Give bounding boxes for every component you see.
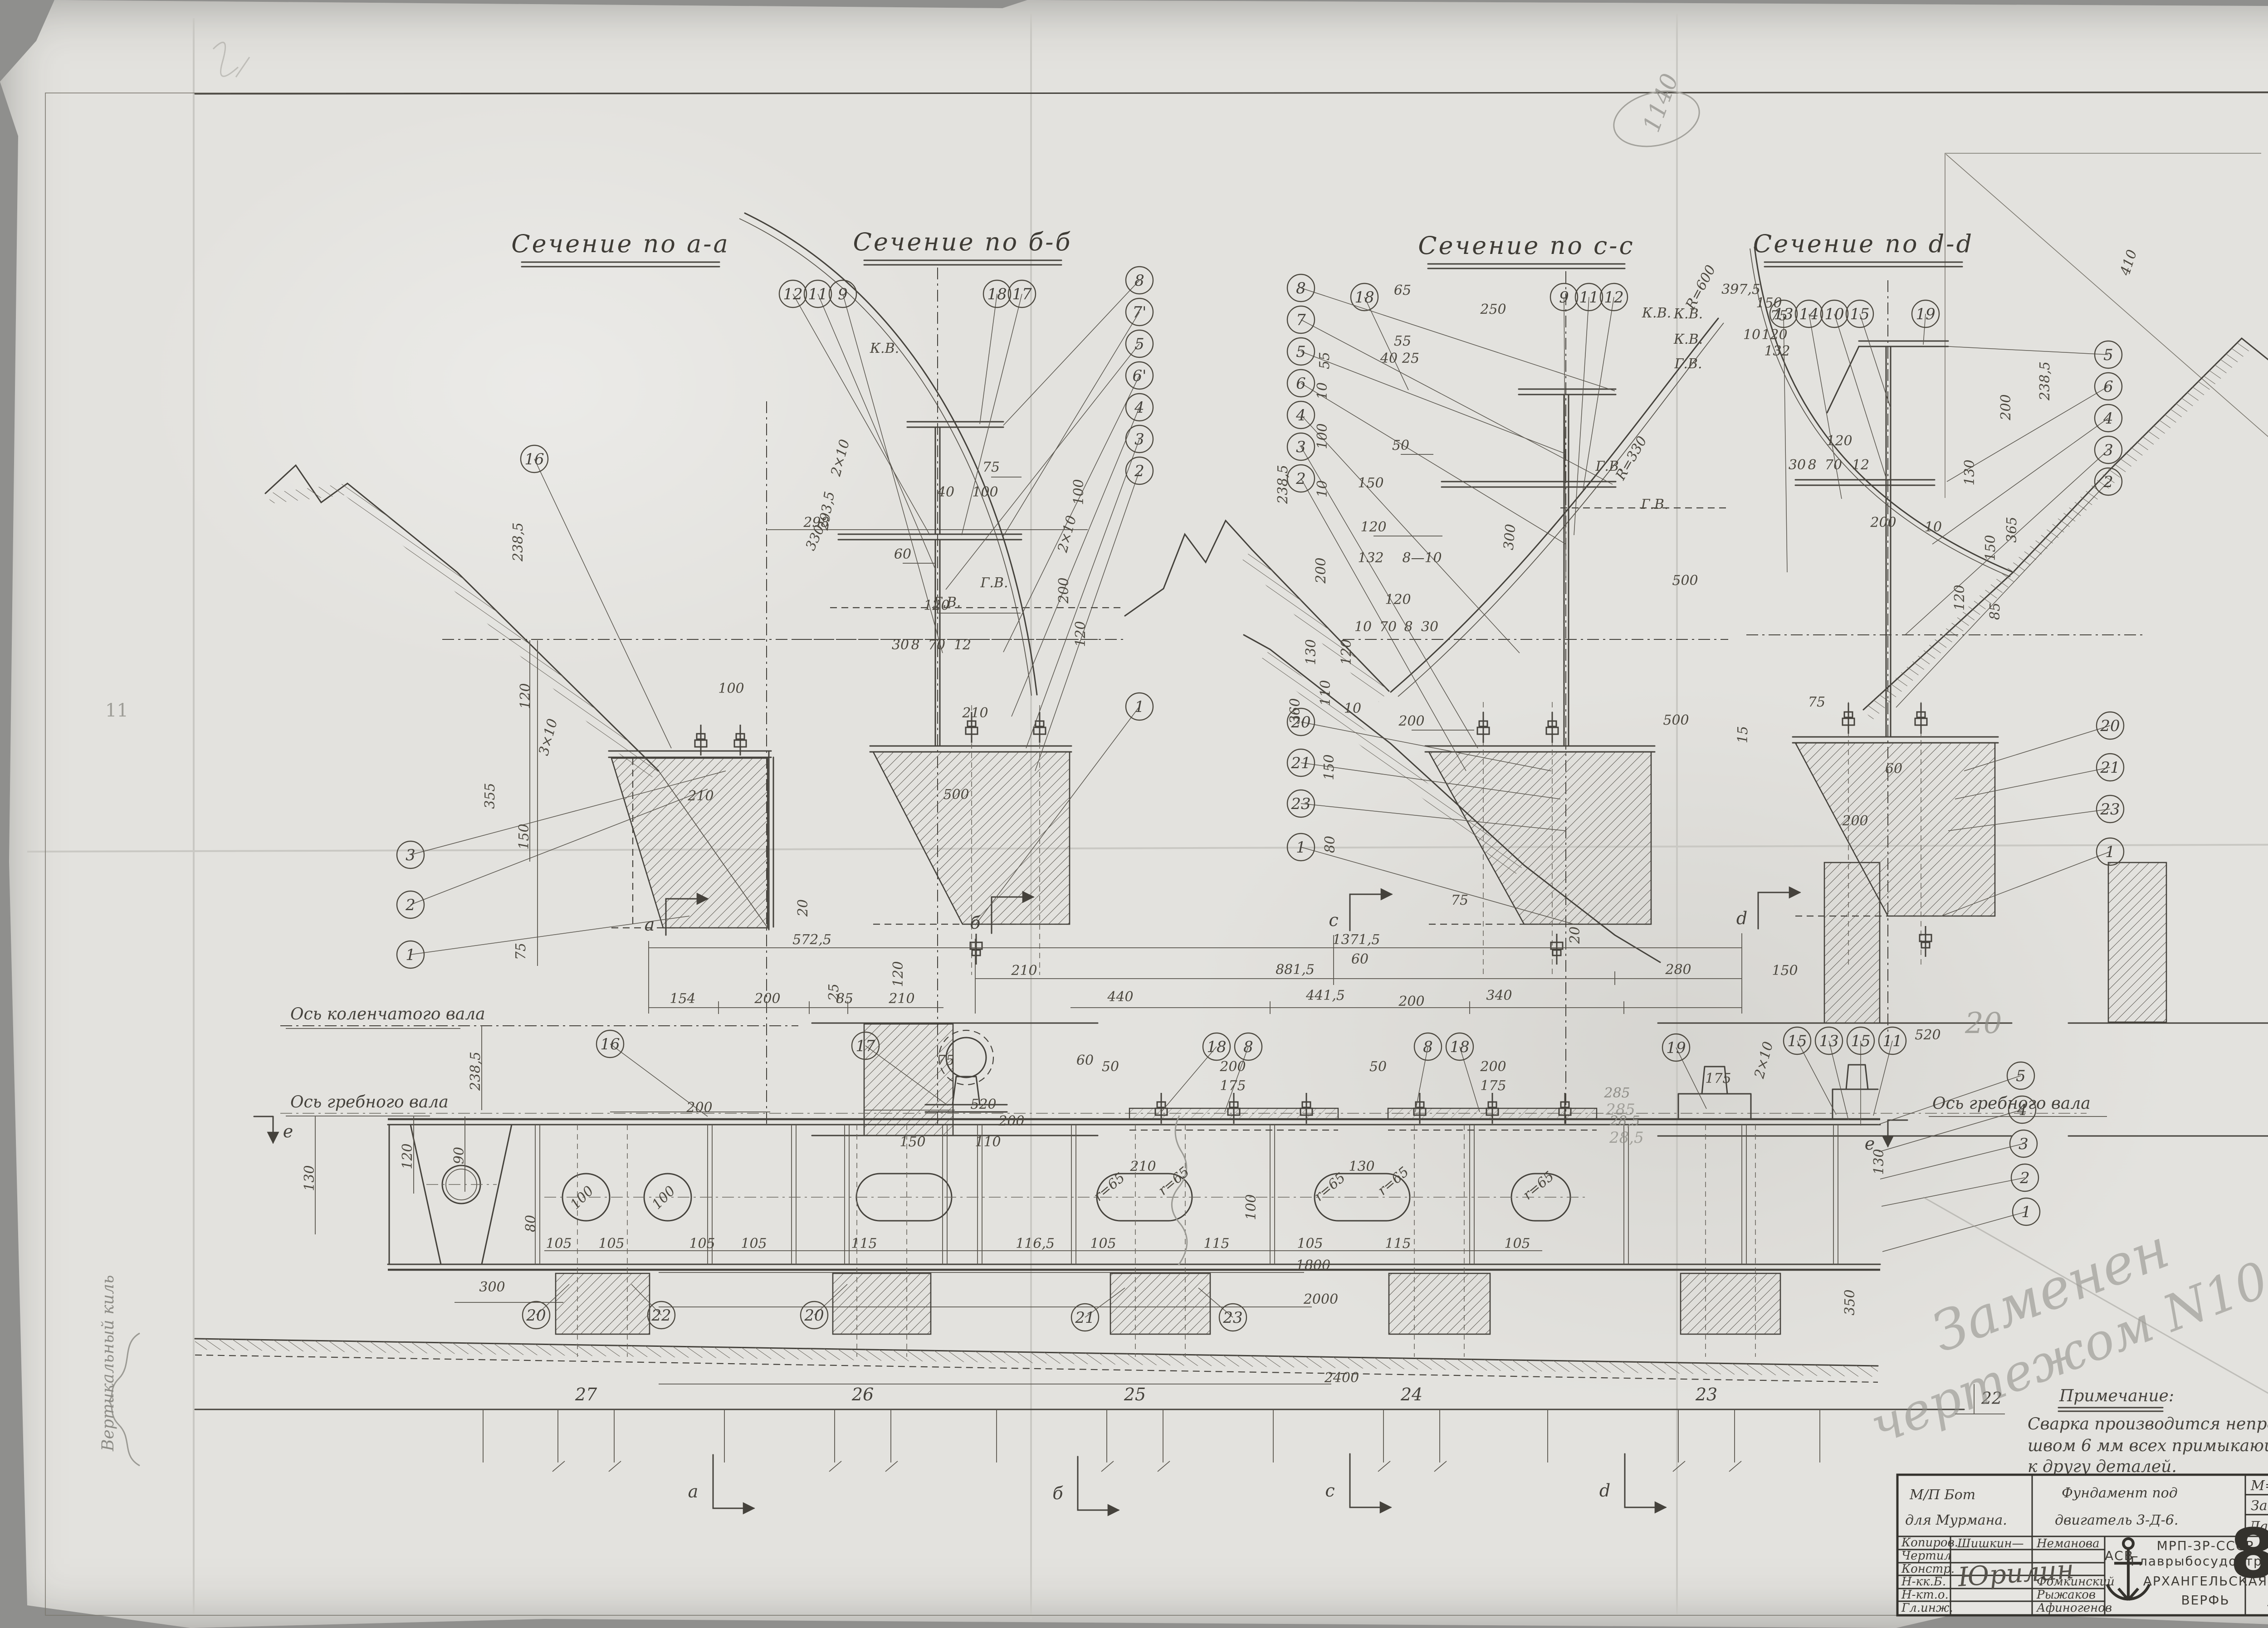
dimension-label: Г.В.: [1641, 497, 1669, 512]
dimension-label: 365: [2004, 517, 2020, 542]
dimension-label: 572,5: [792, 932, 831, 948]
callout-number: 21: [1290, 754, 1310, 772]
dimension-label: 210: [1011, 963, 1037, 979]
dimension-label: 105: [1297, 1236, 1323, 1252]
callout-number: 19: [1916, 305, 1935, 323]
dimension-label: 120: [1073, 621, 1089, 647]
callout-number: 5: [1296, 343, 1306, 361]
dimension-label: 8—10: [1402, 550, 1442, 566]
dimension-label: 80: [523, 1215, 539, 1232]
callout-number: 18: [1354, 288, 1374, 307]
dimension-label: 200: [1870, 515, 1896, 531]
dimension-label: 200: [1398, 713, 1424, 729]
role-nkkb: Н-кк.Б.: [1901, 1575, 1946, 1589]
role-copier: Копиров.: [1901, 1536, 1958, 1550]
dimension-label: 60: [894, 546, 911, 562]
dimension-label: 120: [890, 961, 906, 987]
dimension-label: 132: [1764, 343, 1790, 359]
callout-leader-line: [1797, 1041, 1836, 1115]
dimension-label: 200: [1056, 577, 1072, 604]
dimension-label: 85: [836, 991, 853, 1007]
dimension-label: 130: [302, 1165, 318, 1191]
callout-leader-line: [946, 344, 1139, 590]
drawing-canvas: 16321238,52981201003×1035515021075500200…: [0, 0, 2268, 1628]
dimension-label: 200: [998, 1113, 1024, 1129]
project-line-2: для Мурмана.: [1905, 1512, 2007, 1528]
callout-number: 9: [838, 285, 848, 303]
callout-leader-line: [1879, 1110, 2022, 1152]
section-titles: Сечение по а-а Сечение по б-б Сечение по…: [511, 228, 1974, 268]
callout-number: 21: [2100, 759, 2120, 777]
dimension-label: 1371,5: [1333, 932, 1380, 948]
callout-number: 2: [1134, 462, 1144, 480]
dimension-label: 150: [1983, 535, 1999, 561]
dimension-label: 75: [1770, 308, 1788, 324]
callout-leader-line: [1873, 1041, 1892, 1116]
dimension-label: 881,5: [1276, 962, 1315, 978]
dimension-label: 27: [575, 1384, 597, 1404]
dimension-label: 110: [1318, 680, 1334, 706]
dimension-label: 70: [928, 637, 945, 653]
project-line-1: М/П Бот: [1909, 1487, 1975, 1503]
callout-number: 3: [1134, 430, 1144, 448]
dimension-label: 12: [954, 637, 971, 653]
signature-copier: Шишкин—: [1957, 1537, 2024, 1550]
note-line-2: швом 6 мм всех примыкающих друг: [2028, 1437, 2268, 1455]
pencil-285: 285: [1605, 1101, 1635, 1119]
dimension-label: 100: [649, 1183, 679, 1213]
callout-leader-line: [1301, 383, 1566, 544]
callout-number: 5: [2016, 1067, 2026, 1085]
callout-number: 6: [1296, 375, 1306, 393]
callout-number: 6': [1133, 367, 1147, 385]
dimension-label: 75: [982, 459, 1000, 475]
dimension-label: 30: [892, 637, 909, 653]
dimension-label: 120: [400, 1143, 415, 1169]
dimension-label: 110: [975, 1134, 1001, 1150]
frame-numbers: 2726252423: [575, 1384, 1717, 1404]
dimension-label: 120: [1952, 585, 1968, 610]
callout-number: 3: [2019, 1135, 2028, 1153]
callout-number: 18: [1450, 1038, 1469, 1056]
dimension-label: r=65: [1091, 1170, 1128, 1204]
callout-leader-line: [793, 294, 930, 535]
callout-number: 1: [1134, 698, 1144, 716]
dimension-label: 10: [1315, 480, 1330, 497]
dimension-label: 40: [1380, 351, 1398, 366]
callout-leader-line: [1932, 418, 2108, 544]
callout-number: 19: [1666, 1039, 1686, 1057]
dimension-label: К.В.: [1673, 306, 1703, 322]
callout-leader-line: [534, 459, 671, 748]
dimension-label: 30: [1789, 457, 1806, 473]
dimension-label: Г.В.: [980, 575, 1008, 591]
dimension-label: r=65: [1375, 1164, 1412, 1199]
dimension-label: 20: [1567, 926, 1583, 944]
callout-number: 2: [2103, 473, 2113, 491]
callout-leader-line: [610, 1044, 708, 1116]
dimension-label: 120: [518, 683, 533, 709]
dimension-label: 360: [1287, 698, 1303, 724]
dimension-label: К.В.: [1673, 331, 1703, 347]
dimension-label: 12: [1852, 457, 1869, 473]
order-field: Заказ:: [2251, 1498, 2268, 1514]
dimension-label: 210: [687, 788, 714, 804]
dimension-label: 10: [1925, 519, 1942, 535]
dimension-label: 1800: [1296, 1258, 1330, 1273]
callout-leader-line: [1161, 1047, 1217, 1112]
callout-leader-line: [1896, 482, 2108, 707]
dimension-label: 120: [924, 598, 949, 614]
role-designer: Констр.: [1901, 1562, 1955, 1576]
callout-number: 18: [1207, 1038, 1226, 1056]
dimension-label: 105: [1504, 1236, 1530, 1252]
dimension-label: 23: [1695, 1384, 1717, 1404]
dimension-label: 105: [689, 1236, 715, 1252]
section-cc-title: Сечение по с-с: [1418, 231, 1634, 260]
title-block: М/П Бот для Мурмана. Фундамент под двига…: [1897, 1475, 2268, 1615]
dimension-label: 150: [1772, 963, 1798, 979]
callout-number: 16: [600, 1035, 620, 1053]
dimension-label: 8: [911, 637, 919, 653]
callout-number: 6: [2103, 378, 2113, 396]
callout-number: 8: [1296, 279, 1306, 297]
dimension-label: 397,5: [1721, 282, 1760, 297]
note-heading: Примечание:: [2059, 1387, 2174, 1405]
dimension-label: 3×10: [536, 717, 561, 757]
dimension-label: 130: [1349, 1159, 1374, 1175]
dimension-label: 120: [1385, 592, 1411, 608]
dimension-label: 25: [1402, 351, 1419, 366]
dimension-label: 105: [741, 1236, 767, 1252]
callout-number: 8: [1423, 1038, 1433, 1056]
callout-leader-line: [1301, 415, 1520, 653]
dimension-label: 154: [670, 991, 695, 1007]
dimension-label: 520: [970, 1097, 996, 1112]
crankshaft-axis-label: Ось коленчатого вала: [290, 1005, 485, 1024]
callout-number: 2: [405, 896, 415, 914]
dimension-label: 500: [943, 787, 969, 803]
dimension-label: 200: [1398, 994, 1424, 1009]
callout-leader-line: [1948, 346, 2108, 355]
callout-number: 5: [2103, 346, 2113, 364]
org-line-4: ВЕРФЬ: [2181, 1593, 2229, 1608]
dimension-label: 70: [1825, 457, 1842, 473]
dimension-label: 100: [567, 1183, 597, 1213]
dimension-label: 75: [513, 943, 529, 960]
callout-number: 1: [2021, 1203, 2031, 1221]
dimension-label: 2×10: [828, 438, 853, 478]
name-nemanova: Неманова: [2036, 1537, 2100, 1550]
dimension-label: 210: [888, 991, 914, 1007]
callout-number: 20: [526, 1306, 546, 1325]
name-fomkinskiy: Фомкинский: [2037, 1575, 2115, 1589]
dimension-label: 105: [598, 1236, 624, 1252]
drawing-sheet: 16321238,52981201003×1035515021075500200…: [0, 0, 2268, 1628]
callout-number: 23: [2100, 800, 2120, 819]
dimension-label: 8: [1404, 619, 1413, 635]
dimension-label: 40: [937, 484, 954, 500]
callout-number: 14: [1799, 305, 1818, 323]
dimension-label: 8: [1808, 457, 1816, 473]
section-bb-title: Сечение по б-б: [853, 228, 1072, 256]
callout-number: 3: [2103, 441, 2113, 459]
dimension-label: 10: [1344, 701, 1361, 717]
dimension-label: 150: [1321, 754, 1337, 780]
dimension-label: 175: [1220, 1078, 1246, 1094]
dimension-label: 100: [972, 484, 998, 500]
callout-number: 1: [406, 946, 415, 964]
dimension-label: 105: [546, 1236, 572, 1252]
elevation-view: [109, 892, 2107, 1510]
dimension-label: 238,5: [510, 522, 526, 562]
dimension-label: d: [1599, 1481, 1610, 1501]
callout-number: 17: [1012, 285, 1032, 303]
dimension-label: 24: [1400, 1384, 1422, 1404]
dimension-label: 100: [718, 681, 744, 697]
name-afinogenov: Афиногенов: [2036, 1601, 2112, 1615]
dimension-label: 55: [1317, 352, 1333, 369]
dimension-label: 100: [1071, 479, 1087, 505]
dimension-label: 60: [1351, 951, 1369, 967]
callout-number: 7': [1133, 303, 1147, 322]
section-dd-title: Сечение по d-d: [1753, 229, 1974, 258]
dimension-label: 520: [1915, 1027, 1941, 1043]
pencil-285b: 28,5: [1609, 1129, 1644, 1147]
note-line-3: к другу деталей.: [2028, 1457, 2177, 1476]
callout-number: 20: [2100, 717, 2120, 735]
callout-number: 12: [783, 285, 802, 303]
callout-leader-line: [1301, 351, 1565, 453]
callout-number: 15: [1851, 1032, 1870, 1050]
dimension-label: 285: [1603, 1085, 1630, 1101]
callout-number: 10: [1824, 305, 1844, 323]
dimension-label: 25: [1124, 1384, 1146, 1404]
dimension-label: 70: [1379, 619, 1397, 635]
dimension-label: 150: [1358, 475, 1383, 491]
callout-leader-line: [1882, 1212, 2026, 1252]
role-draftsman: Чертил: [1901, 1549, 1951, 1563]
pencil-mark-20: 20: [1965, 1007, 2002, 1040]
subject-line-1: Фундамент под: [2062, 1485, 2178, 1501]
dimension-label: 10: [1354, 619, 1372, 635]
dimension-label: 100: [1315, 423, 1330, 449]
section-aa-title: Сечение по а-а: [511, 229, 729, 258]
dimension-label: 30: [1421, 619, 1438, 635]
callout-number: 8: [1134, 272, 1144, 290]
dimension-label: 75: [1808, 694, 1825, 710]
dimension-label: 175: [1705, 1071, 1731, 1087]
dimension-label: 115: [851, 1236, 877, 1252]
dimension-label: 50: [1392, 438, 1409, 453]
name-ryzhakov: Рыжаков: [2036, 1588, 2096, 1602]
dimension-label: 120: [1761, 327, 1787, 343]
callout-number: 11: [808, 285, 827, 303]
callout-number: 5: [1134, 335, 1144, 353]
dimension-label: 2×10: [1055, 514, 1080, 555]
dimension-label: 10: [1743, 327, 1760, 343]
axis-labels: Ось коленчатого вала Ось гребного вала О…: [99, 1005, 2091, 1452]
callout-leader-line: [1003, 375, 1139, 652]
dimension-label: 250: [1480, 302, 1506, 317]
dimension-label: 150: [516, 824, 532, 849]
callout-number: 3: [406, 846, 415, 864]
dimension-label: Г.В.: [1674, 356, 1702, 372]
dimension-label: К.В.: [1642, 305, 1671, 321]
dimension-label: 340: [1486, 988, 1512, 1004]
dimension-label: 120: [1826, 433, 1852, 449]
dimension-label: 85: [1987, 603, 2003, 620]
callout-number: 3: [1296, 438, 1306, 456]
callout-number: 8: [1243, 1038, 1253, 1056]
scale-field: М=1:5: [2250, 1478, 2268, 1494]
dimension-label: б: [1052, 1483, 1063, 1503]
dimension-label: 350: [1842, 1289, 1858, 1315]
dimension-label: 300: [1501, 523, 1519, 551]
logo-letters: АСВ: [2105, 1548, 2134, 1563]
dimension-label: 355: [482, 783, 498, 809]
dimension-label: 2400: [1324, 1370, 1359, 1386]
callout-number: 11: [1579, 288, 1598, 307]
callout-number: 15: [1850, 305, 1869, 323]
drawing-number: 800: [2229, 1515, 2268, 1594]
dimension-label: 50: [1369, 1059, 1387, 1075]
callout-number: 18: [987, 285, 1007, 303]
callout-number: 7: [1296, 311, 1306, 329]
callout-number: 4: [2103, 409, 2113, 428]
callout-number: 21: [1075, 1309, 1095, 1327]
dimension-label: а: [688, 1482, 699, 1501]
dimension-label: 280: [1665, 962, 1691, 978]
dimension-label: 75: [937, 1053, 954, 1068]
callout-number: 12: [1604, 288, 1623, 307]
dimension-label: 65: [1394, 283, 1411, 298]
dimension-label: d: [1736, 908, 1747, 928]
role-chief-engineer: Гл.инж.: [1901, 1601, 1953, 1615]
dimension-label: 200: [1480, 1059, 1506, 1075]
dimension-label: 440: [1107, 989, 1133, 1005]
callout-number: 17: [855, 1037, 875, 1055]
dimension-label: 116,5: [1016, 1236, 1055, 1252]
callout-leader-line: [1880, 1144, 2024, 1179]
elevation-annotations: 572,51371,5210881,5280150154200852104404…: [283, 908, 1887, 1503]
dimension-label: 80: [1322, 836, 1338, 853]
dimension-label: 200: [1842, 813, 1868, 829]
dimension-label: 200: [1998, 394, 2014, 420]
callout-leader-line: [818, 294, 935, 569]
dimension-label: 175: [1480, 1078, 1506, 1094]
dimension-label: 210: [1129, 1159, 1156, 1175]
callout-leader-line: [1829, 1041, 1848, 1120]
dimension-label: е: [1865, 1134, 1875, 1154]
callout-leader-line: [1882, 1178, 2025, 1206]
callout-number: 2: [1295, 470, 1306, 488]
dimension-label: 2×10: [1751, 1040, 1776, 1081]
dimension-label: 120: [1360, 519, 1386, 535]
dimension-label: 500: [1672, 573, 1698, 589]
subject-line-2: двигатель 3-Д-6.: [2055, 1512, 2178, 1528]
dimension-label: 500: [1663, 712, 1689, 728]
dimension-label: 50: [1102, 1059, 1119, 1075]
dimension-label: 2000: [1303, 1292, 1338, 1307]
dimension-label: 238,5: [468, 1052, 484, 1091]
callout-number: 22: [651, 1306, 671, 1325]
callout-number: 23: [1290, 795, 1310, 813]
propshaft-axis-label-left: Ось гребного вала: [290, 1093, 449, 1111]
dimension-label: 410: [2117, 248, 2140, 278]
dimension-label: 60: [1885, 761, 1902, 777]
callout-number: 11: [1882, 1032, 1902, 1050]
dimension-label: 132: [1358, 550, 1383, 566]
callout-number: 23: [1222, 1309, 1242, 1327]
vertical-keel-label: Вертикальный киль: [99, 1275, 117, 1452]
callout-number: 20: [804, 1306, 824, 1325]
callout-number: 9: [1559, 288, 1569, 307]
dimension-label: а: [645, 915, 655, 935]
dimension-label: Г.В.: [1595, 458, 1623, 474]
dimension-label: 210: [962, 705, 988, 721]
dimension-label: К.В.: [870, 341, 899, 356]
dimension-label: 15: [1735, 726, 1751, 743]
note-line-1: Сварка производится непрерывным: [2028, 1415, 2268, 1433]
dimension-label: 200: [754, 991, 780, 1007]
callout-number: 13: [1819, 1032, 1838, 1050]
dimension-label: 115: [1203, 1236, 1229, 1252]
dimension-label: 105: [1090, 1236, 1116, 1252]
dimension-label: е: [283, 1121, 293, 1141]
dimension-label: 200: [1219, 1059, 1246, 1075]
callout-number: 15: [1787, 1032, 1807, 1050]
propshaft-axis-label-right: Ось гребного вала: [1932, 1094, 2091, 1113]
elevation-callouts: 16171888181915131511543212022202123: [523, 1027, 2040, 1331]
dimension-label: 20: [795, 899, 811, 917]
dimension-label: 200: [1313, 557, 1329, 584]
role-nkto: Н-кт.о.: [1901, 1588, 1949, 1602]
pencil-left-mark: 11: [105, 700, 128, 721]
dimension-label: 120: [1339, 639, 1354, 665]
dimension-label: 200: [686, 1100, 712, 1116]
callout-number: 1: [1296, 838, 1306, 857]
dimension-label: 26: [851, 1384, 874, 1404]
dimension-label: 150: [899, 1134, 925, 1150]
dimension-label: 130: [1303, 639, 1319, 665]
dimension-label: 115: [1385, 1236, 1411, 1252]
dimension-label: 90: [451, 1147, 467, 1164]
dimension-label: R=600: [1682, 263, 1719, 312]
dimension-label: 238,5: [1275, 465, 1291, 504]
dimension-label: с: [1329, 910, 1338, 930]
callout-number: 4: [1295, 406, 1306, 424]
dimension-label: 441,5: [1305, 988, 1345, 1004]
dimension-label: 130: [1962, 459, 1978, 485]
dimension-label: б: [970, 913, 981, 933]
dimension-label: 100: [1243, 1194, 1259, 1220]
callout-number: 4: [1134, 399, 1144, 417]
dimension-label: 238,5: [2037, 361, 2053, 401]
dimension-label: 300: [479, 1279, 505, 1295]
dimension-label: 55: [1394, 333, 1411, 349]
callout-number: 2: [2019, 1169, 2030, 1187]
dimension-label: 60: [1076, 1053, 1094, 1068]
callout-number: 1: [2105, 843, 2115, 861]
callout-number: 16: [524, 450, 544, 468]
dimension-label: 75: [1451, 892, 1468, 908]
dimension-label: с: [1325, 1481, 1334, 1501]
dimension-label: 10: [1315, 382, 1330, 400]
